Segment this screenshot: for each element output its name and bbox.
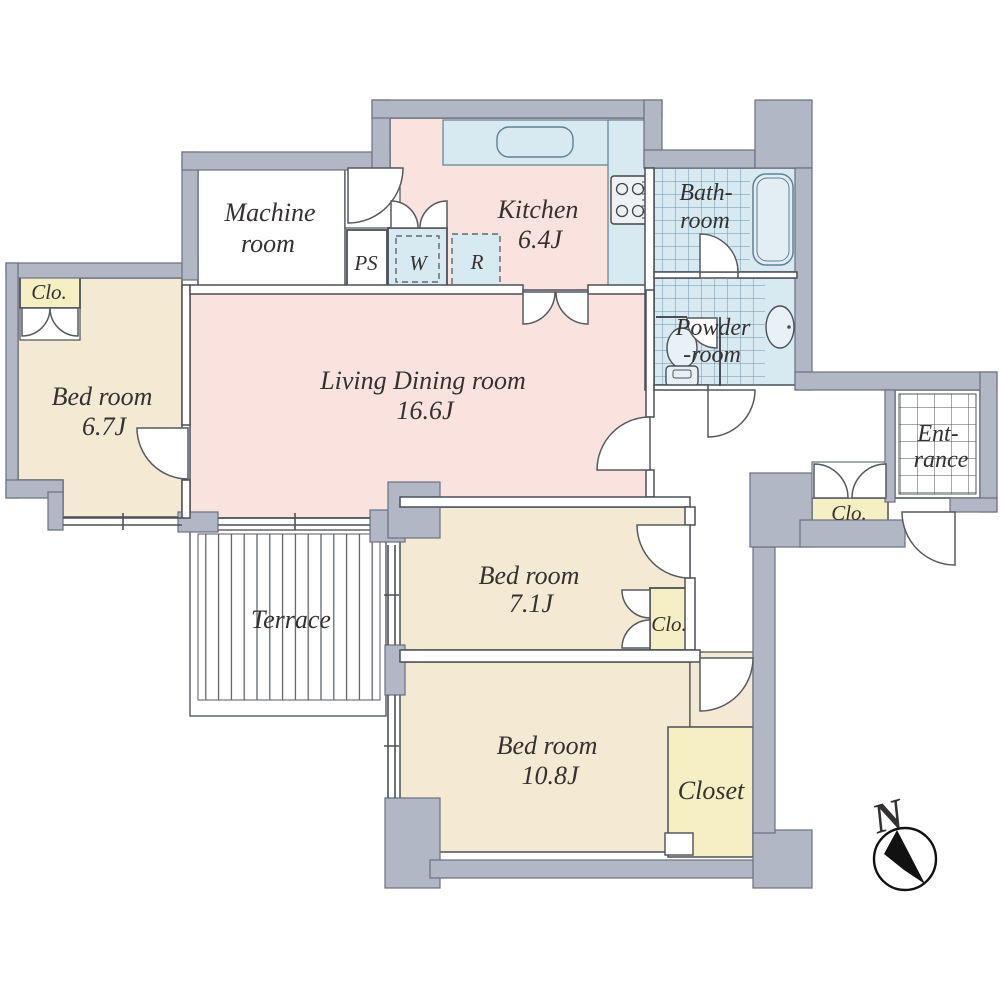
machine-room-label-line2: room <box>241 229 295 258</box>
powder-room-label-line1: Powder <box>675 315 751 341</box>
kitchen-label: Kitchen <box>497 195 579 224</box>
machine-room-label-line1: Machine <box>224 198 316 227</box>
floor-plan-page: Machine room PS W R Kitchen 6.4J Bath- r… <box>0 0 1000 1000</box>
bedroom-108-size-label: 10.8J <box>521 761 580 790</box>
living-dining-label: Living Dining room <box>319 366 526 395</box>
bedroom-67-size-label: 6.7J <box>82 412 128 441</box>
bathroom-label-line2: room <box>680 208 730 234</box>
kitchen-sink-icon <box>497 127 573 157</box>
clo-entrance-label: Clo. <box>831 501 867 525</box>
powder-room-door <box>708 390 755 437</box>
bathtub-icon <box>753 174 793 265</box>
bedroom-71-size-label: 7.1J <box>509 589 555 618</box>
floor-plan-drawing: Machine room PS W R Kitchen 6.4J Bath- r… <box>0 0 1000 1000</box>
clo-bedroom67-label: Clo. <box>31 280 67 304</box>
living-dining-size-label: 16.6J <box>396 396 455 425</box>
powder-room-label-line2: -room <box>683 342 741 368</box>
bedroom-67-label: Bed room <box>52 382 153 411</box>
entrance-label-line2: rance <box>914 447 969 473</box>
bathroom-label-line1: Bath- <box>679 180 732 206</box>
closet-label: Closet <box>678 776 745 805</box>
clo-bedroom71-label: Clo. <box>651 612 687 636</box>
entrance-door <box>902 512 955 565</box>
north-label: N <box>866 790 910 843</box>
kitchen-size-label: 6.4J <box>518 225 564 254</box>
north-compass-icon: N <box>866 790 936 890</box>
machine-room-floor <box>198 168 345 287</box>
gas-stove-icon <box>611 176 648 224</box>
bedroom-108-label: Bed room <box>497 731 598 760</box>
entrance-label-line1: Ent- <box>916 421 958 447</box>
washbasin-icon <box>766 306 794 348</box>
terrace-label: Terrace <box>251 605 331 634</box>
refrigerator-label: R <box>470 250 484 274</box>
bedroom-71-label: Bed room <box>479 561 580 590</box>
pipe-niche-box <box>665 833 693 855</box>
pipe-space-label: PS <box>353 251 378 275</box>
washer-label: W <box>409 251 429 275</box>
